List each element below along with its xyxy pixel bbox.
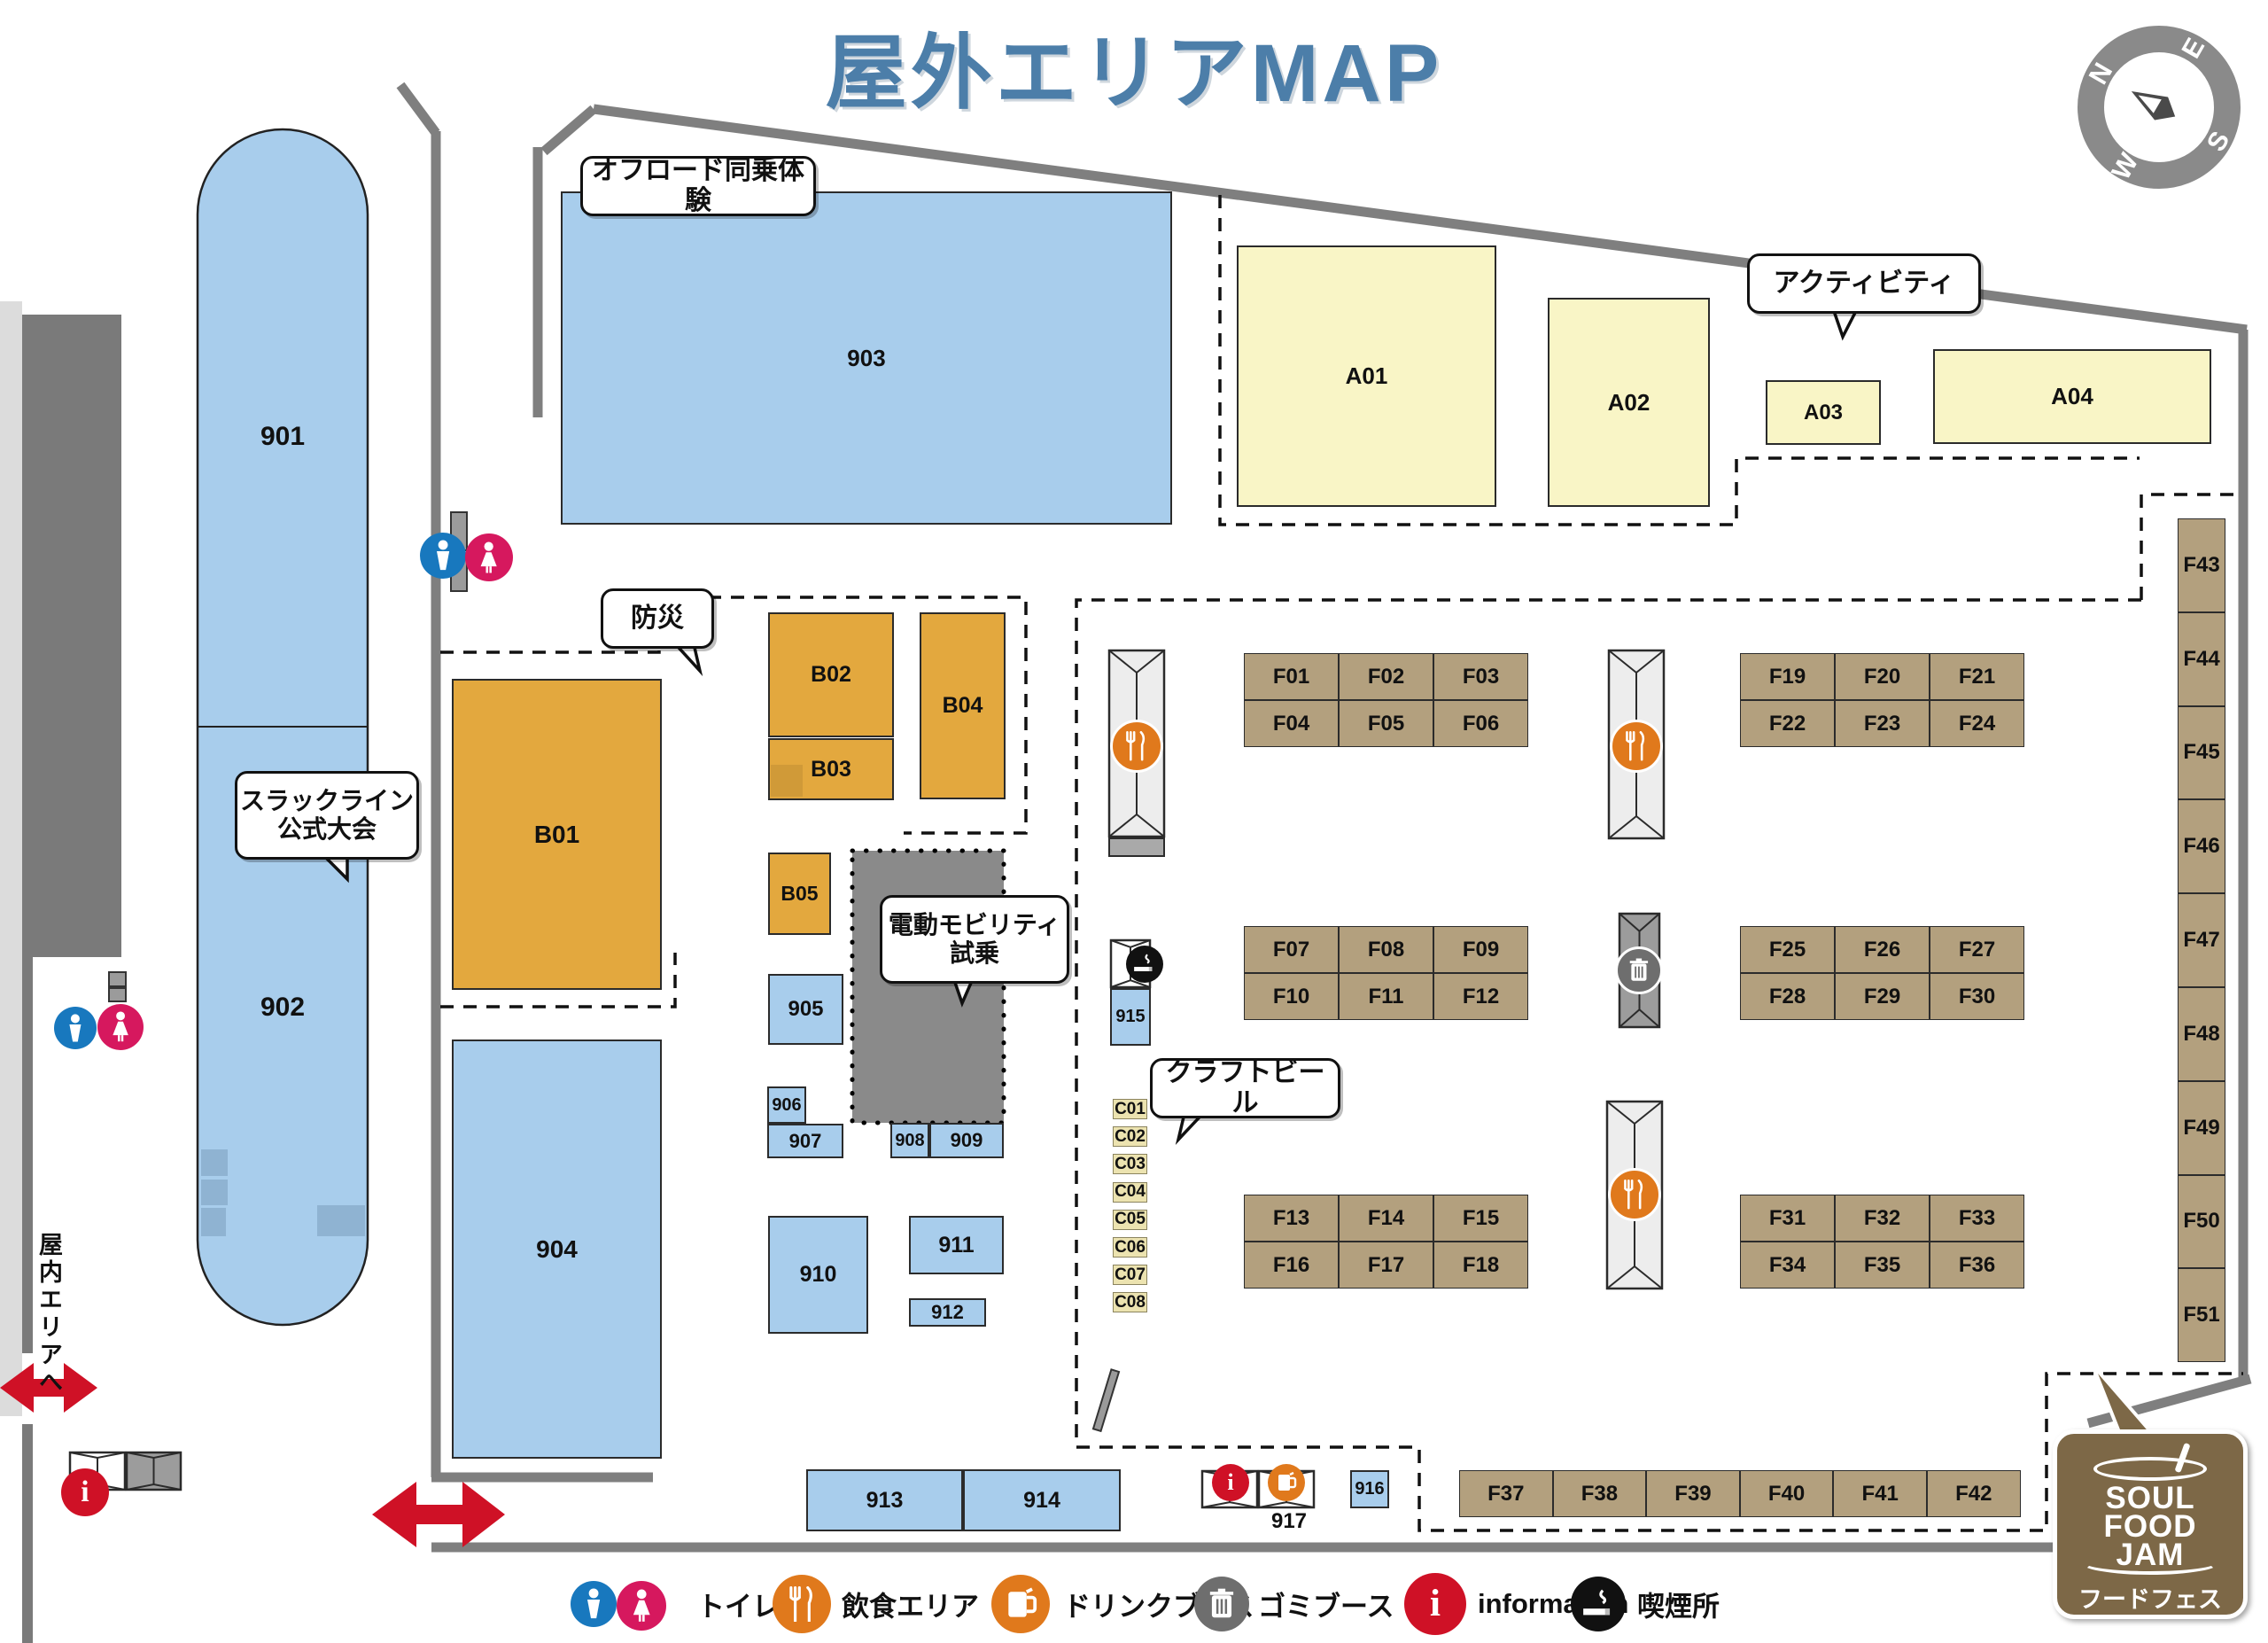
callout-slackline: スラックライン 公式大会 (235, 771, 419, 860)
soul-food-jam-logo: SOUL FOOD JAM フードフェス (2053, 1429, 2248, 1619)
callout-craftbeer: クラフトビール (1150, 1058, 1340, 1118)
callout-mobility: 電動モビリティ 試乗 (880, 895, 1069, 984)
callout-bousai: 防災 (601, 588, 714, 649)
page-title: 屋外エリアMAP (826, 7, 1442, 125)
outdoor-area-map: N E S W 903A01A02A03A04B01B02B03B04B0590… (0, 0, 2268, 1643)
logo-swoosh-icon (2080, 1550, 2220, 1575)
callout-offroad: オフロード同乗体験 (580, 156, 816, 216)
logo-cup-icon (2093, 1457, 2207, 1481)
callouts-layer: オフロード同乗体験アクティビティ防災スラックライン 公式大会電動モビリティ 試乗… (0, 0, 2268, 1643)
callout-activity: アクティビティ (1747, 253, 1981, 314)
logo-subtitle: フードフェス (2078, 1580, 2222, 1615)
